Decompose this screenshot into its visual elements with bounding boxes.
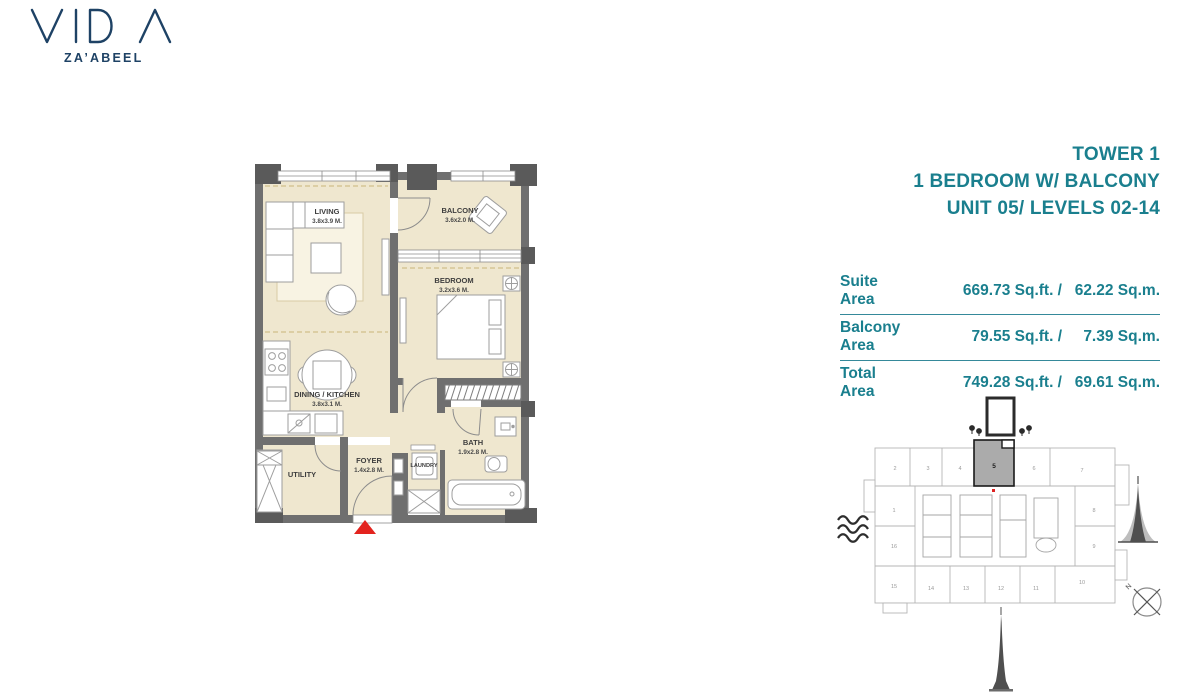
- stove: [265, 349, 288, 375]
- unit-5-number: 5: [992, 463, 996, 470]
- living-window: [278, 171, 390, 181]
- svg-text:13: 13: [963, 586, 969, 592]
- coffee-table: [311, 243, 341, 273]
- kitchen-sink: [267, 387, 286, 401]
- tv-console: [382, 239, 389, 295]
- suite-area-sqm: 62.22 Sq.m.: [1062, 282, 1160, 300]
- floor-plan-drawing: LIVING 3.8x3.9 M. BALCONY 3.6x2.0 M. BED…: [255, 163, 537, 537]
- svg-text:10: 10: [1079, 580, 1085, 586]
- svg-text:9: 9: [1092, 544, 1095, 550]
- toilet: [485, 456, 507, 472]
- wardrobe: [445, 385, 521, 400]
- svg-text:6: 6: [1032, 466, 1035, 472]
- svg-text:3: 3: [926, 466, 929, 472]
- unit-header: TOWER 1 1 BEDROOM W/ BALCONY UNIT 05/ LE…: [913, 141, 1160, 222]
- unit-levels-title: UNIT 05/ LEVELS 02-14: [913, 195, 1160, 222]
- living-label: LIVING: [314, 207, 339, 216]
- svg-text:8: 8: [1092, 508, 1095, 514]
- utility-label: UTILITY: [288, 470, 316, 479]
- svg-text:1: 1: [892, 508, 895, 514]
- shaft-center: [408, 490, 440, 513]
- nightstand-top: [503, 276, 520, 291]
- table-row: Balcony Area 79.55 Sq.ft. / 7.39 Sq.m.: [840, 315, 1160, 361]
- dishwasher: [288, 414, 310, 433]
- bath-sink: [495, 417, 516, 436]
- svg-text:15: 15: [891, 584, 897, 590]
- tower-title: TOWER 1: [913, 141, 1160, 168]
- unit-type-title: 1 BEDROOM W/ BALCONY: [913, 168, 1160, 195]
- foyer-label: FOYER: [356, 456, 382, 465]
- balcony-dims: 3.6x2.0 M.: [445, 217, 475, 224]
- balcony-area-sqft: 79.55 Sq.ft. /: [912, 328, 1062, 346]
- bath-dims: 1.9x2.8 M.: [458, 449, 488, 456]
- bedroom-dims: 3.2x3.6 M.: [439, 287, 469, 294]
- waves-icon: [838, 516, 868, 542]
- key-plan: 5 2 3 4 6 7 1 16 8 9 15 14 13 12 11 10: [820, 390, 1190, 700]
- svg-text:14: 14: [928, 586, 934, 592]
- armchair: [326, 285, 356, 315]
- bath-label: BATH: [463, 438, 483, 447]
- svg-text:11: 11: [1033, 586, 1039, 592]
- cabinet: [315, 414, 337, 433]
- dining-kitchen-dims: 3.8x3.1 M.: [312, 401, 342, 408]
- balcony-label: BALCONY: [441, 206, 478, 215]
- laundry-threshold: [411, 445, 435, 450]
- suite-area-sqft: 669.73 Sq.ft. /: [912, 282, 1062, 300]
- svg-text:4: 4: [958, 466, 961, 472]
- shaft-top: [257, 451, 282, 465]
- brand-block: VIDA ZA’ABEEL: [30, 8, 186, 65]
- highlighted-unit: 5: [974, 440, 1014, 492]
- svg-text:12: 12: [998, 586, 1004, 592]
- living-dims: 3.8x3.9 M.: [312, 218, 342, 225]
- foyer-dims: 1.4x2.8 M.: [354, 467, 384, 474]
- compass-icon: N: [1125, 583, 1161, 616]
- burj-landmark-icon: [989, 607, 1013, 692]
- building-locator-icon: [970, 398, 1032, 436]
- svg-text:2: 2: [893, 466, 896, 472]
- balcony-area-label: Balcony Area: [840, 319, 912, 355]
- wall-mirror: [400, 298, 406, 343]
- laundry-label: LAUNDRY: [410, 463, 437, 469]
- bathtub: [448, 480, 525, 509]
- balcony-window: [451, 171, 515, 181]
- nightstand-bottom: [503, 362, 520, 377]
- table-row: Suite Area 669.73 Sq.ft. / 62.22 Sq.m.: [840, 269, 1160, 315]
- svg-text:16: 16: [891, 544, 897, 550]
- floor-plan-brochure-page: VIDA ZA’ABEEL TOWER 1 1 BEDROOM W/ BALCO…: [0, 0, 1200, 700]
- compass-north-label: N: [1125, 583, 1134, 592]
- entrance-threshold: [353, 515, 392, 523]
- area-table: Suite Area 669.73 Sq.ft. / 62.22 Sq.m. B…: [840, 269, 1160, 406]
- bedroom-label: BEDROOM: [434, 276, 473, 285]
- balcony-area-sqm: 7.39 Sq.m.: [1062, 328, 1160, 346]
- balcony-rail-window: [398, 250, 521, 262]
- dining-kitchen-label: DINING / KITCHEN: [294, 390, 360, 399]
- brand-location-label: ZA’ABEEL: [64, 51, 186, 65]
- vida-logo-icon: [30, 8, 186, 44]
- suite-area-label: Suite Area: [840, 273, 912, 309]
- svg-text:7: 7: [1080, 468, 1083, 474]
